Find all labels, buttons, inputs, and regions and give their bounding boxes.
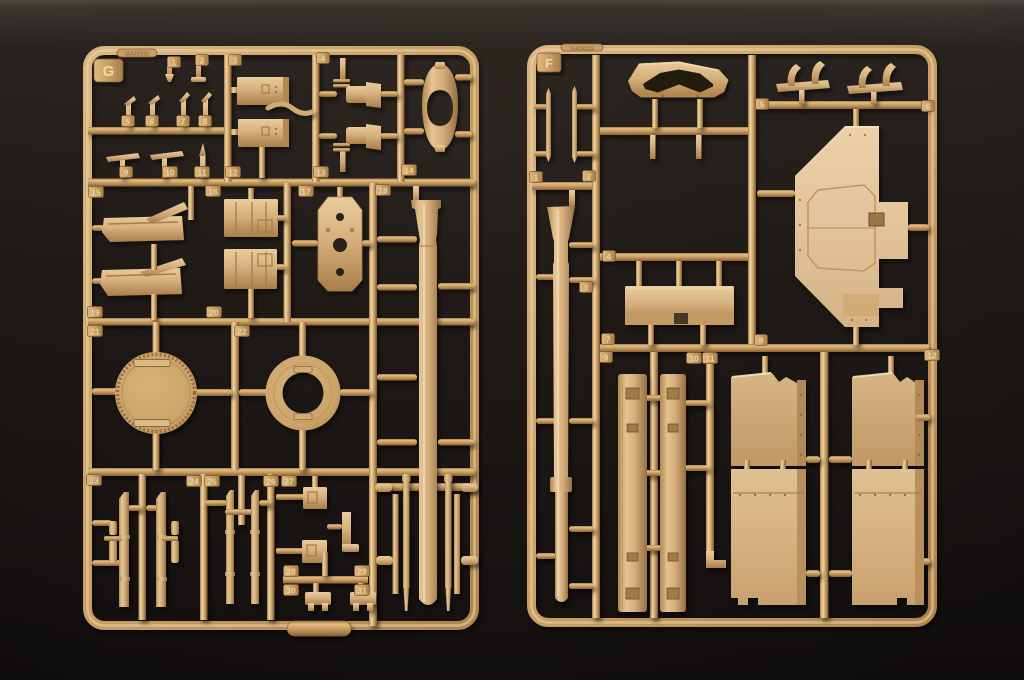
- svg-text:21: 21: [90, 327, 100, 337]
- svg-text:5: 5: [126, 117, 131, 127]
- svg-text:3: 3: [233, 56, 238, 66]
- svg-text:9: 9: [604, 353, 609, 363]
- svg-text:17: 17: [301, 187, 311, 197]
- svg-text:13: 13: [316, 168, 326, 178]
- svg-text:30: 30: [286, 586, 296, 596]
- svg-text:G: G: [103, 63, 115, 80]
- svg-text:4: 4: [321, 54, 326, 64]
- svg-text:7: 7: [606, 335, 611, 345]
- svg-text:6: 6: [150, 117, 155, 127]
- svg-text:1: 1: [172, 58, 177, 68]
- svg-text:2: 2: [200, 56, 205, 66]
- svg-text:2: 2: [587, 172, 592, 182]
- svg-text:7: 7: [181, 117, 186, 127]
- svg-text:27: 27: [284, 477, 294, 487]
- svg-text:31: 31: [357, 586, 367, 596]
- svg-text:15: 15: [91, 188, 101, 198]
- svg-text:11: 11: [706, 354, 715, 364]
- svg-text:F: F: [545, 56, 553, 71]
- svg-text:8: 8: [203, 117, 208, 127]
- svg-text:5: 5: [760, 100, 765, 110]
- svg-text:8: 8: [759, 336, 764, 346]
- svg-text:20: 20: [209, 308, 219, 318]
- svg-text:12: 12: [228, 168, 238, 178]
- svg-text:14: 14: [404, 166, 414, 176]
- svg-text:23: 23: [89, 476, 99, 486]
- svg-text:1: 1: [534, 173, 539, 183]
- svg-text:19: 19: [90, 308, 100, 318]
- svg-text:10: 10: [689, 354, 699, 364]
- svg-text:6: 6: [926, 102, 931, 112]
- svg-text:35A29/228: 35A29/228: [570, 47, 594, 53]
- svg-text:28: 28: [286, 567, 296, 577]
- svg-text:18: 18: [378, 186, 388, 196]
- svg-text:3: 3: [584, 283, 589, 293]
- svg-text:25: 25: [207, 477, 217, 487]
- svg-text:26: 26: [266, 477, 276, 487]
- svg-text:11: 11: [198, 168, 207, 178]
- svg-text:16: 16: [208, 187, 218, 197]
- svg-text:9: 9: [124, 168, 129, 178]
- svg-text:35A29/228: 35A29/228: [125, 52, 149, 58]
- svg-text:22: 22: [237, 327, 247, 337]
- svg-text:24: 24: [189, 477, 199, 487]
- svg-text:4: 4: [607, 252, 612, 262]
- svg-text:29: 29: [357, 567, 367, 577]
- svg-text:12: 12: [927, 351, 937, 361]
- svg-text:10: 10: [165, 168, 175, 178]
